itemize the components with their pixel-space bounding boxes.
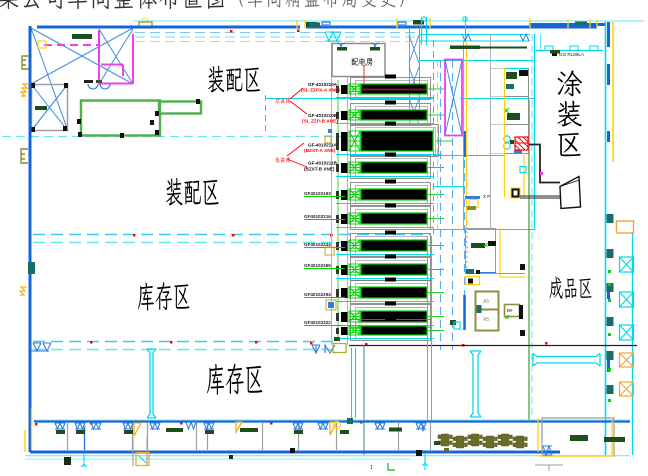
svg-text:GF-4010210B: GF-4010210B [308, 113, 338, 118]
svg-text:1: 1 [370, 465, 373, 471]
svg-text:GF40102322: GF40102322 [304, 320, 331, 325]
svg-text:GF-4010211B: GF-4010211B [308, 161, 338, 166]
svg-text:(BZXT-B XNE): (BZXT-B XNE) [304, 167, 335, 172]
svg-text:GF40102216: GF40102216 [304, 214, 331, 219]
svg-text:(BZXT-A XNE): (BZXT-A XNE) [304, 148, 336, 154]
svg-text:GF40102265: GF40102265 [304, 263, 331, 268]
svg-text:B#: B# [507, 308, 513, 313]
svg-text:A5: A5 [483, 299, 489, 305]
svg-text:X P: X P [483, 194, 490, 199]
svg-text:GF-4010211A: GF-4010211A [308, 143, 338, 148]
svg-text:GF40102244: GF40102244 [304, 242, 331, 247]
svg-text:GF40102294: GF40102294 [304, 292, 331, 297]
svg-text:GF40102193: GF40102193 [304, 191, 331, 196]
svg-text:(SL ZZP-B XNE): (SL ZZP-B XNE) [302, 119, 338, 125]
svg-text:A5: A5 [483, 317, 489, 323]
svg-text:GG RL89LA: GG RL89LA [559, 52, 585, 57]
svg-text:GF-4010210A: GF-4010210A [308, 82, 338, 87]
svg-text:(SL ZZPX-A XNE): (SL ZZPX-A XNE) [301, 88, 340, 94]
